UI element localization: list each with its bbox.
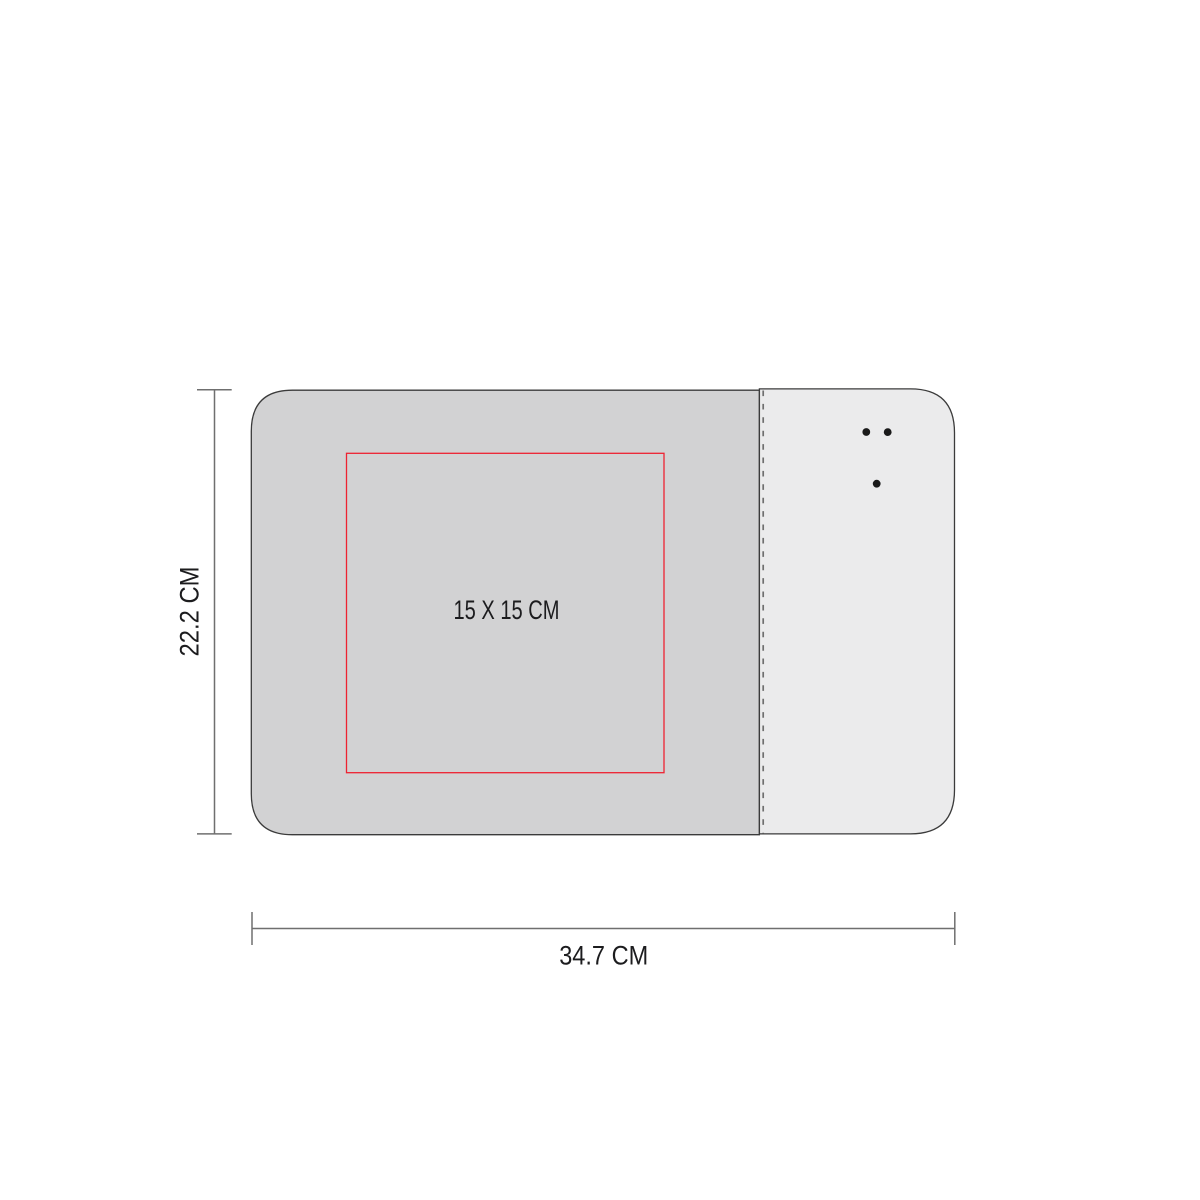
svg-text:15 X 15 CM: 15 X 15 CM: [454, 595, 560, 625]
svg-text:22.2 CM: 22.2 CM: [174, 567, 204, 657]
svg-text:34.7 CM: 34.7 CM: [559, 941, 648, 971]
